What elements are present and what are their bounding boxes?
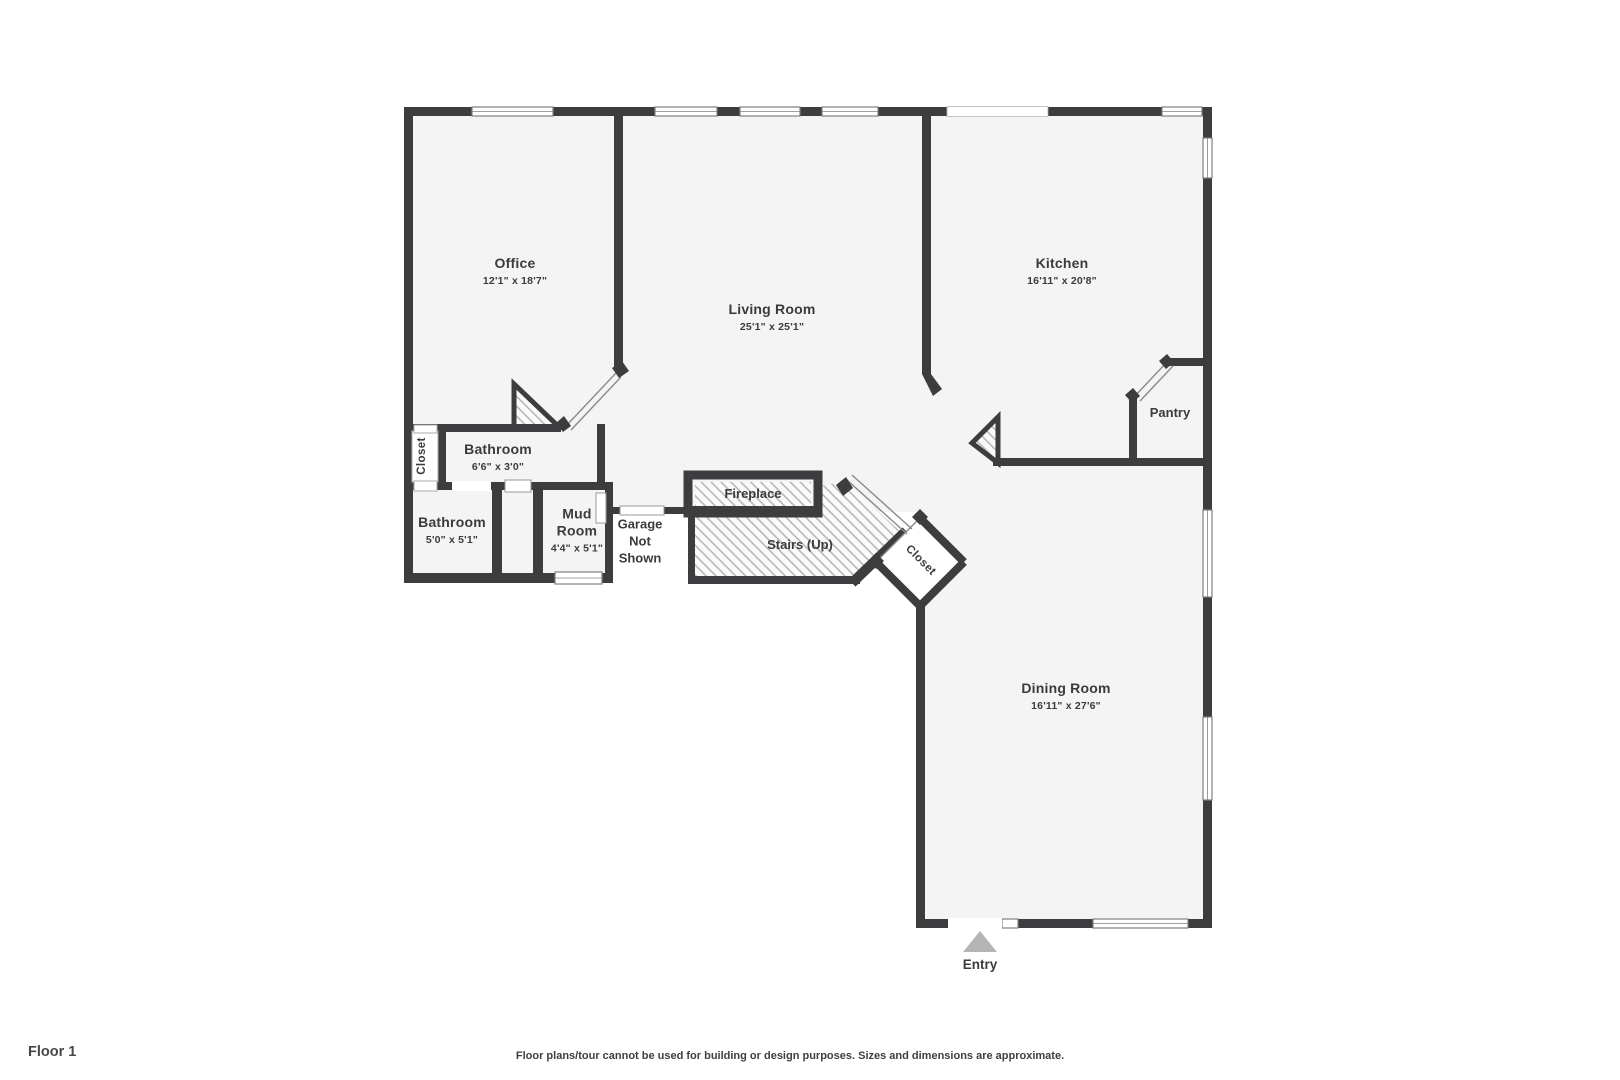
room-label-dining: Dining Room 16'11" x 27'6"	[1021, 680, 1110, 712]
living-dims: 25'1" x 25'1"	[729, 321, 816, 334]
opening-entry	[948, 918, 1002, 929]
wall-dining-left	[916, 600, 925, 919]
closet-hall-name: Closet	[416, 437, 430, 475]
mud-room-name: Mud Room	[551, 505, 603, 539]
entry-arrow-icon	[963, 931, 997, 952]
room-label-kitchen: Kitchen 16'11" x 20'8"	[1027, 255, 1097, 287]
garage-name: Garage Not Shown	[612, 517, 668, 568]
wall-stairs-left	[688, 506, 695, 584]
label-stairs: Stairs (Up)	[767, 537, 833, 553]
closet-hall-door-bottom	[414, 481, 437, 491]
wall-left	[404, 107, 413, 583]
floor-label: Floor 1	[28, 1044, 76, 1060]
door-garage-bridge	[620, 506, 664, 515]
bathroom-small-name: Bathroom	[464, 441, 532, 458]
entry-label: Entry	[963, 957, 998, 973]
mud-room-dims: 4'4" x 5'1"	[551, 542, 603, 555]
wall-stairs-bottom	[688, 576, 860, 584]
office-name: Office	[483, 255, 547, 272]
dining-dims: 16'11" x 27'6"	[1021, 700, 1110, 713]
room-label-closet-hall: Closet	[416, 437, 430, 475]
stairs-name: Stairs (Up)	[767, 537, 833, 553]
wall-kitchen-bottom	[993, 458, 1203, 466]
wall-kitchen-divider	[922, 116, 931, 374]
disclaimer-text: Floor plans/tour cannot be used for buil…	[516, 1050, 1064, 1062]
wall-bathroom1-right	[597, 424, 605, 490]
label-garage-not-shown: Garage Not Shown	[612, 517, 668, 568]
door-bathroom2	[452, 481, 491, 491]
wall-bathroom2-right	[492, 482, 502, 578]
room-label-bathroom-small: Bathroom 6'6" x 3'0"	[464, 441, 532, 473]
wall-pantry-left	[1129, 396, 1137, 458]
door-utility-closet	[505, 480, 531, 492]
room-label-mud-room: Mud Room 4'4" x 5'1"	[551, 505, 603, 554]
room-label-living: Living Room 25'1" x 25'1"	[729, 301, 816, 333]
wall-stairs-top	[688, 506, 818, 514]
pantry-name: Pantry	[1150, 405, 1190, 421]
living-name: Living Room	[729, 301, 816, 318]
bathroom-dims: 5'0" x 5'1"	[418, 534, 486, 547]
bathroom-small-dims: 6'6" x 3'0"	[464, 461, 532, 474]
window-dining-bottom-small	[1002, 919, 1018, 928]
wall-closet-inner	[438, 431, 446, 482]
entry-text: Entry	[963, 957, 998, 973]
office-dims: 12'1" x 18'7"	[483, 275, 547, 288]
closet-hall-door-top	[414, 425, 437, 433]
room-label-bathroom: Bathroom 5'0" x 5'1"	[418, 514, 486, 546]
bathroom-name: Bathroom	[418, 514, 486, 531]
label-fireplace: Fireplace	[724, 486, 781, 502]
dining-name: Dining Room	[1021, 680, 1110, 697]
wall-office-divider	[614, 116, 623, 368]
opening-kitchen-top	[947, 107, 1048, 117]
fireplace-name: Fireplace	[724, 486, 781, 502]
room-label-office: Office 12'1" x 18'7"	[483, 255, 547, 287]
room-label-pantry: Pantry	[1150, 405, 1190, 421]
kitchen-name: Kitchen	[1027, 255, 1097, 272]
wall-mudroom-left	[533, 482, 543, 578]
kitchen-dims: 16'11" x 20'8"	[1027, 275, 1097, 288]
floor-plan-page: Office 12'1" x 18'7" Living Room 25'1" x…	[0, 0, 1620, 1080]
